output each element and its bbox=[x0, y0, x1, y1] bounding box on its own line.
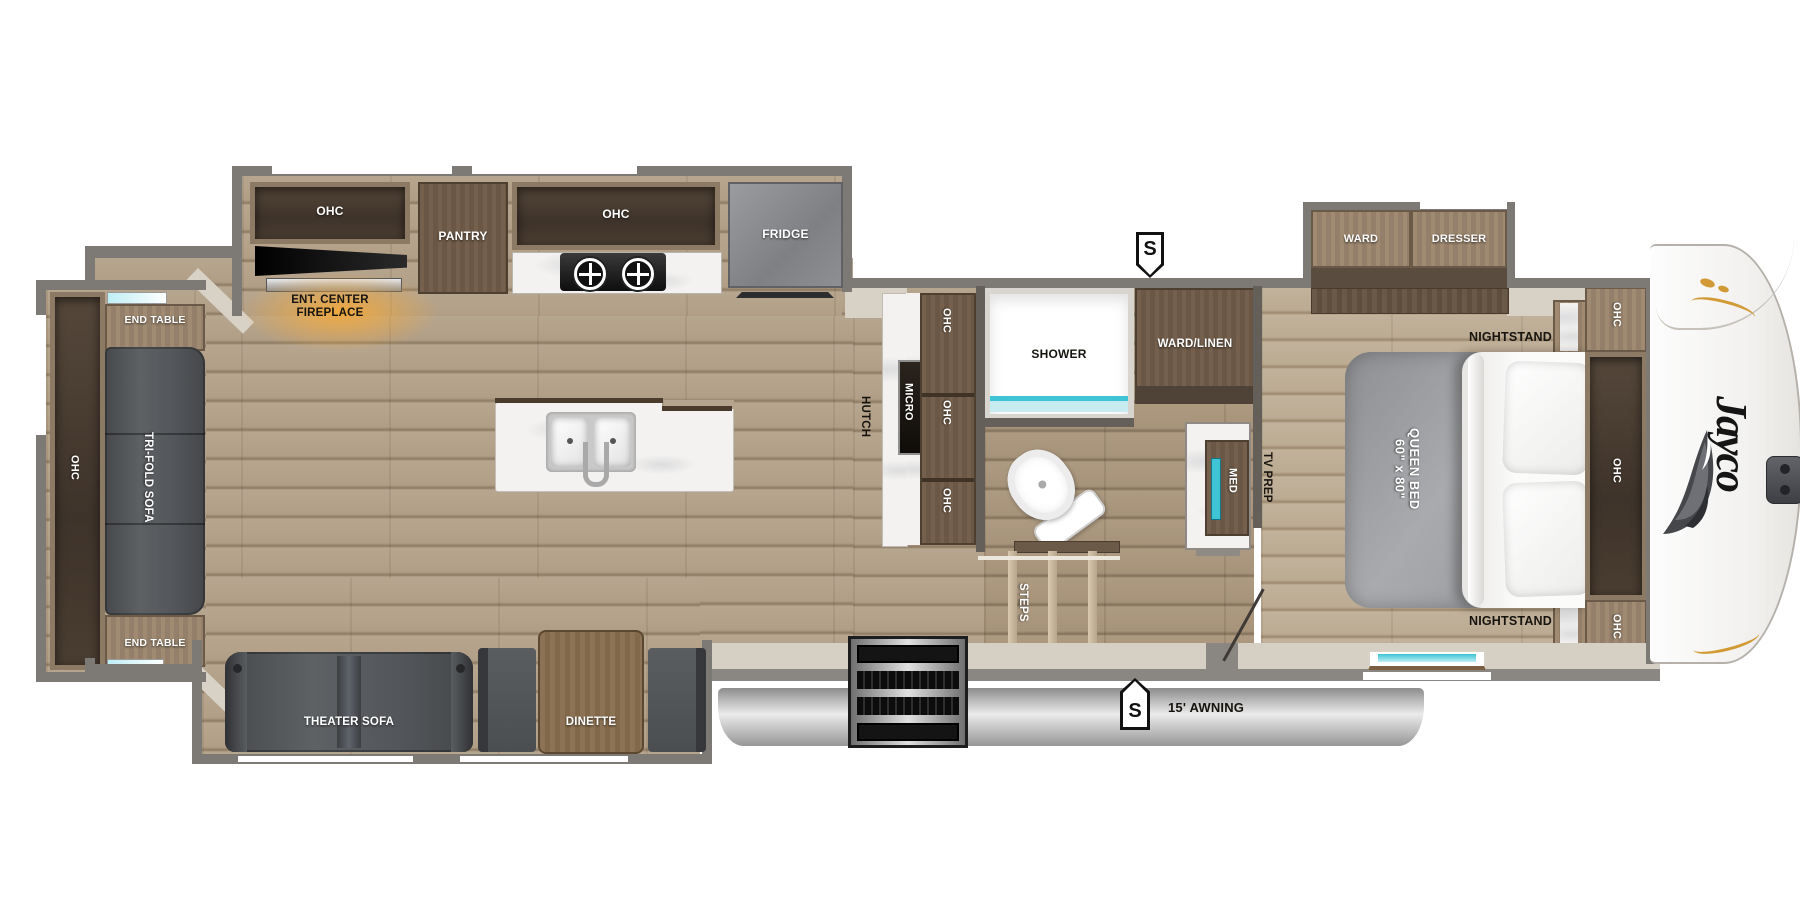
nightstand-bottom-label: NIGHTSTAND bbox=[1432, 614, 1552, 628]
bed-size-label: 60" x 80" bbox=[1392, 428, 1407, 510]
ent-center-line2: FIREPLACE bbox=[250, 307, 410, 320]
cupholder-right bbox=[456, 664, 465, 673]
bed-type-label: QUEEN BED bbox=[1407, 428, 1422, 510]
front-ohc-top-label: OHC bbox=[1610, 302, 1622, 327]
bedroom-slide-window bbox=[1420, 202, 1508, 209]
ward-linen-label: WARD/LINEN bbox=[1135, 338, 1255, 351]
street-side-s-text: S bbox=[1136, 238, 1164, 261]
dinette-bench-left bbox=[478, 648, 536, 752]
hitch-pin bbox=[1766, 456, 1800, 504]
steps-post-2 bbox=[1048, 551, 1057, 643]
tri-fold-sofa-label: TRI-FOLD SOFA bbox=[141, 432, 154, 523]
island-sink bbox=[546, 412, 636, 472]
wall-top-right bbox=[1510, 278, 1658, 288]
bedroom-slide-wall-right bbox=[1507, 202, 1515, 288]
door-slide-window-2 bbox=[460, 756, 628, 762]
door-slide-wall-left bbox=[192, 640, 202, 764]
end-table-top bbox=[105, 304, 205, 351]
nightstand-top-label: NIGHTSTAND bbox=[1432, 330, 1552, 344]
entry-steps-exterior bbox=[848, 636, 968, 748]
end-table-bottom-label: END TABLE bbox=[105, 638, 205, 650]
stove-burner-left bbox=[574, 258, 606, 290]
entry-doorway-gap bbox=[1206, 643, 1238, 681]
wall-bottom-left bbox=[85, 664, 199, 676]
sink-drain-right bbox=[610, 438, 616, 444]
cupholder-left bbox=[233, 664, 242, 673]
galley-ohc-bottom-label: OHC bbox=[940, 488, 952, 513]
bed-label: 60" x 80" QUEEN BED bbox=[1392, 428, 1421, 510]
galley-ohc-middle-label: OHC bbox=[940, 400, 952, 425]
shower-threshold bbox=[990, 396, 1128, 412]
theater-sofa bbox=[225, 652, 473, 752]
wall-under-shower bbox=[984, 418, 1134, 427]
entry-step-tread bbox=[1378, 654, 1476, 662]
kitchen-slide-window-1 bbox=[272, 166, 452, 174]
kitchen-ohc-right-label: OHC bbox=[512, 208, 720, 221]
ent-center-line1: ENT. CENTER bbox=[250, 294, 410, 307]
dresser-label: DRESSER bbox=[1411, 233, 1507, 245]
bed-pillow-bottom bbox=[1502, 481, 1592, 598]
rear-slide-window bbox=[36, 315, 46, 435]
vanity-foot bbox=[1196, 548, 1240, 556]
wall-bath-right bbox=[1253, 286, 1262, 528]
awning bbox=[718, 688, 1424, 746]
fridge-handle bbox=[736, 292, 834, 298]
sink-drain-left bbox=[567, 438, 573, 444]
rear-ohc-label: OHC bbox=[68, 455, 80, 480]
end-table-top-label: END TABLE bbox=[105, 315, 205, 327]
kitchen-slide-wall-right bbox=[842, 166, 852, 292]
theater-sofa-label: THEATER SOFA bbox=[225, 716, 473, 729]
wall-rear-top-stub bbox=[85, 246, 95, 290]
micro-label: MICRO bbox=[902, 383, 914, 421]
tri-fold-sofa bbox=[105, 347, 205, 615]
door-slide-window-1 bbox=[238, 756, 413, 762]
sink-faucet bbox=[583, 442, 609, 487]
stove bbox=[560, 253, 666, 291]
rear-slide-window-top bbox=[107, 292, 167, 304]
island-edge-left bbox=[495, 398, 663, 403]
entry-step bbox=[1368, 650, 1486, 670]
wall-top-left bbox=[85, 246, 237, 258]
door-side-s-badge: S bbox=[1120, 678, 1150, 730]
ward-linen-base bbox=[1135, 386, 1255, 404]
galley-ohc-top-label: OHC bbox=[940, 308, 952, 333]
dinette-label: DINETTE bbox=[538, 716, 644, 729]
med-label: MED bbox=[1226, 468, 1238, 493]
shower-label: SHOWER bbox=[984, 348, 1134, 361]
galley-cabinet-divider-1 bbox=[922, 393, 974, 397]
hutch-label: HUTCH bbox=[858, 396, 871, 437]
dinette-table bbox=[538, 630, 644, 754]
steps-label: STEPS bbox=[1016, 583, 1029, 622]
bottom-window-strip bbox=[1363, 672, 1491, 680]
dinette-bench-right bbox=[648, 648, 706, 752]
med-tv-strip bbox=[1211, 458, 1221, 520]
door-side-s-text: S bbox=[1120, 700, 1150, 723]
wall-top-middle bbox=[845, 278, 1307, 288]
kitchen-ohc-left-label: OHC bbox=[250, 205, 410, 218]
nightstand-bottom-surface bbox=[1560, 603, 1578, 647]
rear-ohc-cabinet bbox=[50, 292, 105, 670]
bed-duvet-fold bbox=[1468, 354, 1484, 606]
steps-post-3 bbox=[1088, 551, 1097, 643]
stove-burner-right bbox=[622, 258, 654, 290]
front-ohc-middle-label: OHC bbox=[1610, 458, 1622, 483]
steps-rail bbox=[1014, 541, 1120, 553]
theater-sofa-console bbox=[337, 656, 361, 748]
wall-bath-left bbox=[976, 286, 985, 552]
rear-slide-wall-top bbox=[36, 280, 206, 290]
jayco-logo-text: Jayco bbox=[1706, 396, 1757, 491]
kitchen-slide-window-2 bbox=[472, 166, 637, 174]
awning-label: 15' AWNING bbox=[1168, 701, 1298, 716]
fridge-label: FRIDGE bbox=[728, 228, 843, 241]
pantry-label: PANTRY bbox=[418, 230, 508, 243]
front-ohc-bottom-label: OHC bbox=[1610, 614, 1622, 639]
bed-pillow-top bbox=[1502, 361, 1592, 476]
street-side-s-badge: S bbox=[1136, 232, 1164, 278]
ward-label: WARD bbox=[1311, 233, 1411, 245]
ent-center-label: ENT. CENTER FIREPLACE bbox=[250, 294, 410, 320]
island-edge-right bbox=[662, 406, 732, 411]
galley-cabinet-divider-2 bbox=[922, 478, 974, 482]
nightstand-top-surface bbox=[1560, 303, 1578, 351]
ward-dresser-base bbox=[1311, 268, 1507, 288]
bedroom-slide-wall-left bbox=[1303, 202, 1311, 288]
ward-dresser-toe bbox=[1311, 288, 1509, 314]
steps-platform-edge bbox=[978, 556, 1120, 560]
floorplan-canvas: OHC END TABLE TRI-FOLD SOFA END TABLE OH… bbox=[0, 0, 1800, 920]
